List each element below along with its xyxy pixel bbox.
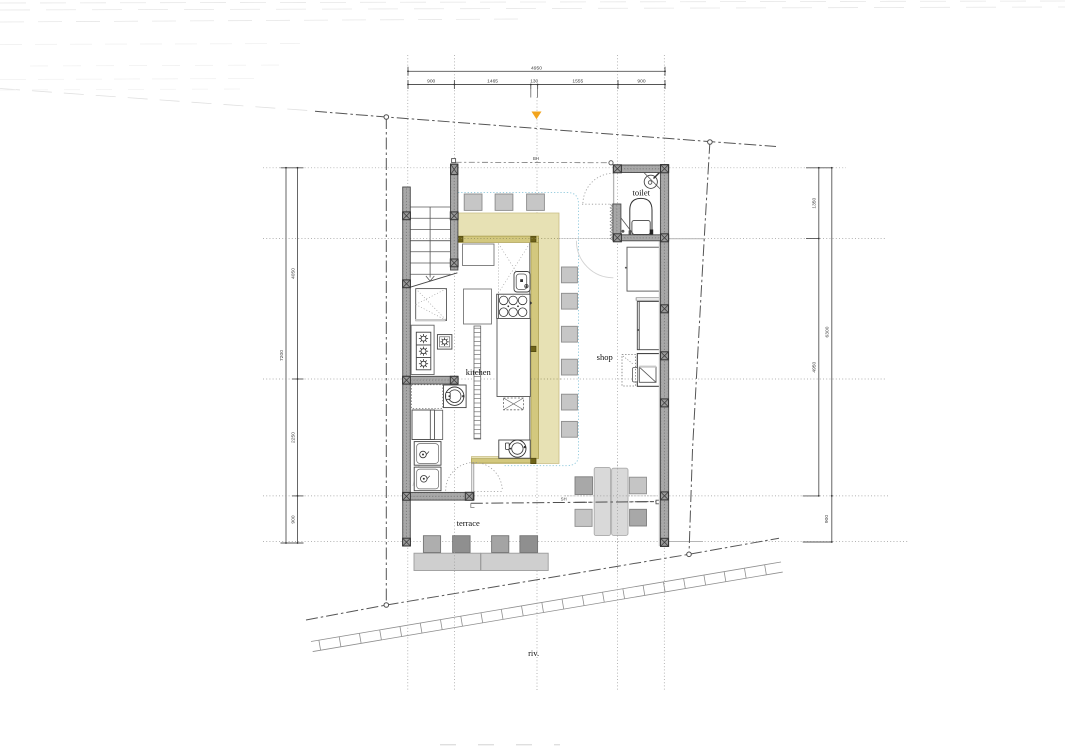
svg-text:terrace: terrace [457, 518, 480, 528]
svg-text:SH: SH [561, 497, 567, 502]
svg-text:900: 900 [824, 515, 830, 523]
svg-text:shop: shop [597, 352, 613, 362]
svg-text:900: 900 [637, 79, 645, 85]
svg-text:130: 130 [530, 78, 538, 84]
svg-text:riv.: riv. [528, 648, 539, 658]
svg-text:4950: 4950 [811, 361, 817, 372]
svg-text:4950: 4950 [531, 65, 542, 71]
svg-text:1465: 1465 [487, 79, 498, 85]
svg-text:4050: 4050 [291, 268, 297, 279]
svg-text:toilet: toilet [633, 188, 651, 198]
svg-text:kitchen: kitchen [466, 367, 492, 377]
svg-text:6300: 6300 [824, 326, 830, 337]
svg-text:900: 900 [291, 515, 297, 523]
svg-text:900: 900 [427, 79, 435, 85]
svg-text:7200: 7200 [279, 350, 285, 361]
svg-text:1350: 1350 [811, 197, 817, 208]
svg-text:BH: BH [533, 156, 539, 161]
svg-text:1555: 1555 [572, 79, 583, 85]
svg-text:2250: 2250 [291, 432, 297, 443]
